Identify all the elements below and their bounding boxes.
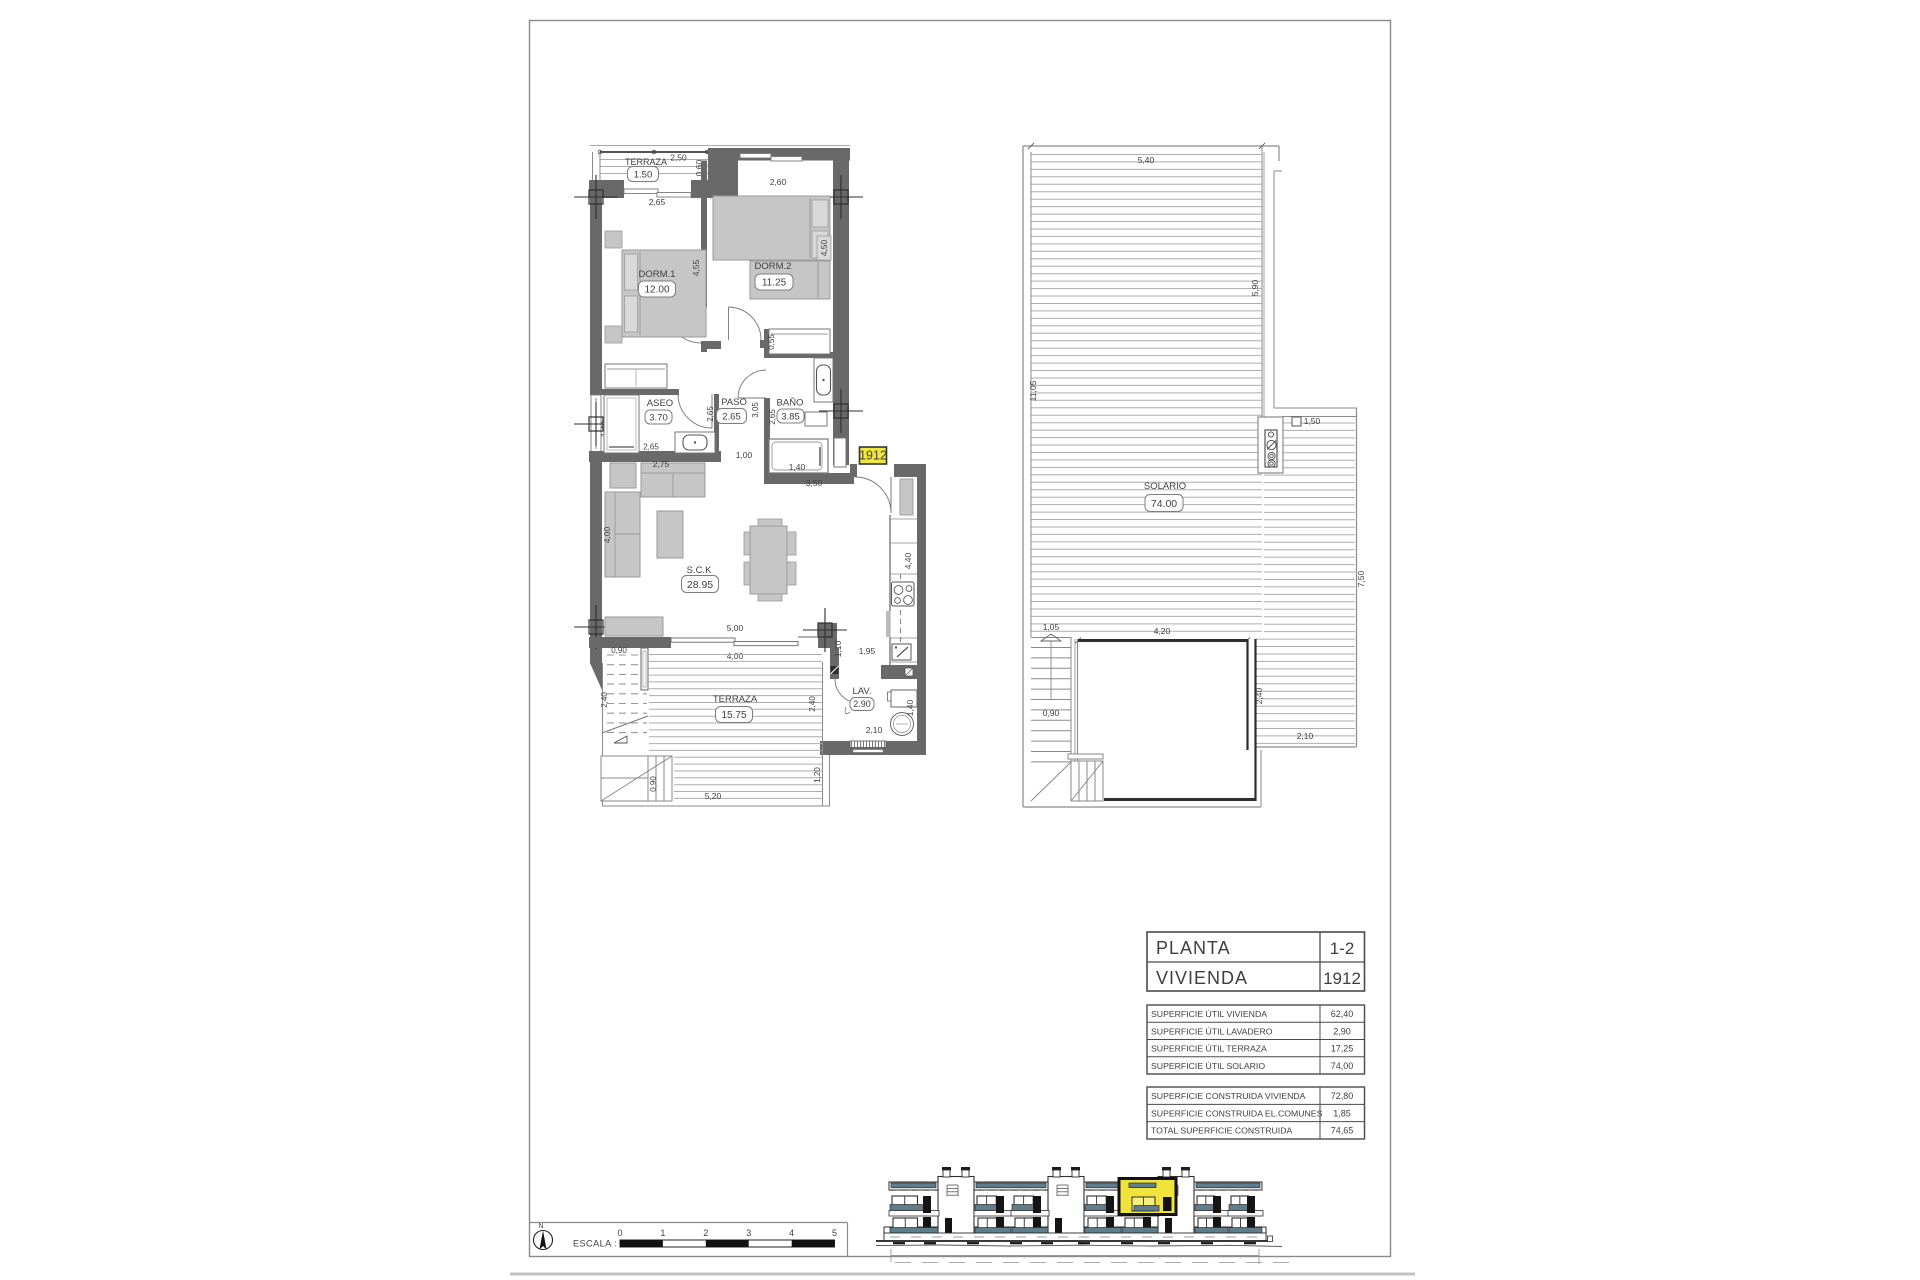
svg-text:2,40: 2,40 [808, 696, 817, 712]
svg-text:1,50: 1,50 [1304, 416, 1321, 426]
svg-text:74,65: 74,65 [1331, 1126, 1354, 1136]
svg-text:1912: 1912 [859, 449, 887, 463]
svg-text:2,65: 2,65 [768, 409, 777, 425]
svg-text:SUPERFICIE ÚTIL VIVIENDA: SUPERFICIE ÚTIL VIVIENDA [1151, 1009, 1267, 1019]
svg-text:3,50: 3,50 [806, 478, 823, 488]
svg-text:N: N [538, 1223, 543, 1230]
svg-text:2,40: 2,40 [600, 692, 609, 708]
svg-text:5,00: 5,00 [727, 623, 744, 633]
svg-text:TOTAL SUPERFICIE CONSTRUIDA: TOTAL SUPERFICIE CONSTRUIDA [1151, 1126, 1292, 1136]
svg-text:DORM.1: DORM.1 [639, 269, 676, 280]
svg-text:VIVIENDA: VIVIENDA [1156, 968, 1248, 988]
svg-text:15.75: 15.75 [721, 710, 746, 721]
svg-text:1: 1 [660, 1228, 665, 1238]
svg-text:3.70: 3.70 [649, 412, 668, 423]
svg-text:1-2: 1-2 [1330, 939, 1355, 958]
svg-text:1,20: 1,20 [813, 767, 822, 783]
svg-text:4,50: 4,50 [819, 239, 829, 256]
svg-text:4,00: 4,00 [727, 651, 744, 661]
svg-text:4,55: 4,55 [691, 259, 701, 276]
svg-text:BAÑO: BAÑO [777, 398, 804, 409]
svg-text:74.00: 74.00 [1151, 498, 1177, 510]
svg-text:SUPERFICIE CONSTRUIDA VIVIENDA: SUPERFICIE CONSTRUIDA VIVIENDA [1151, 1091, 1306, 1101]
svg-text:LAV.: LAV. [852, 686, 871, 697]
svg-text:2,65: 2,65 [706, 406, 715, 422]
svg-text:SUPERFICIE CONSTRUIDA EL.COMUN: SUPERFICIE CONSTRUIDA EL.COMUNES [1151, 1108, 1323, 1118]
svg-text:11.25: 11.25 [762, 278, 787, 289]
svg-text:5,90: 5,90 [1250, 279, 1260, 296]
svg-text:1,10: 1,10 [833, 640, 843, 657]
svg-text:0,55: 0,55 [767, 334, 776, 350]
svg-text:2,50: 2,50 [670, 153, 687, 163]
svg-text:2,75: 2,75 [653, 459, 670, 469]
svg-text:2.65: 2.65 [722, 411, 741, 422]
svg-text:1.50: 1.50 [634, 169, 653, 180]
svg-text:3,05: 3,05 [751, 402, 760, 418]
svg-text:4,40: 4,40 [903, 552, 913, 569]
svg-text:2.90: 2.90 [853, 699, 871, 709]
svg-text:1,05: 1,05 [1043, 622, 1060, 632]
svg-text:2,90: 2,90 [1333, 1026, 1351, 1036]
svg-text:PLANTA: PLANTA [1156, 938, 1231, 958]
svg-text:4: 4 [789, 1228, 794, 1238]
svg-text:2,60: 2,60 [770, 177, 787, 187]
svg-text:4,20: 4,20 [1154, 626, 1171, 636]
svg-text:1,40: 1,40 [905, 699, 915, 716]
svg-text:0,90: 0,90 [611, 646, 627, 655]
svg-text:5: 5 [832, 1228, 837, 1238]
svg-text:1912: 1912 [1323, 969, 1361, 988]
svg-text:1,40: 1,40 [789, 462, 806, 472]
svg-text:74,00: 74,00 [1331, 1061, 1354, 1071]
svg-text:17,25: 17,25 [1331, 1044, 1354, 1054]
svg-text:5,40: 5,40 [1138, 155, 1155, 165]
svg-text:72,80: 72,80 [1331, 1091, 1354, 1101]
svg-text:TERRAZA: TERRAZA [625, 157, 667, 167]
svg-text:4,00: 4,00 [602, 526, 612, 543]
svg-text:1,85: 1,85 [1333, 1108, 1351, 1118]
svg-text:28.95: 28.95 [687, 579, 713, 591]
svg-text:2,10: 2,10 [866, 725, 883, 735]
svg-text:5,20: 5,20 [705, 791, 722, 801]
svg-text:1,95: 1,95 [859, 646, 876, 656]
svg-text:7,50: 7,50 [1356, 570, 1366, 587]
svg-text:0,90: 0,90 [649, 776, 658, 792]
svg-text:S.C.K: S.C.K [687, 565, 712, 576]
svg-text:62,40: 62,40 [1331, 1009, 1354, 1019]
svg-text:SOLARIO: SOLARIO [1144, 481, 1186, 492]
svg-text:2,65: 2,65 [643, 443, 659, 452]
svg-text:12.00: 12.00 [644, 285, 669, 296]
svg-text:TERRAZA: TERRAZA [713, 694, 758, 705]
svg-text:SUPERFICIE ÚTIL SOLARIO: SUPERFICIE ÚTIL SOLARIO [1151, 1061, 1265, 1071]
svg-text:1,00: 1,00 [736, 450, 753, 460]
svg-text:SUPERFICIE ÚTIL LAVADERO: SUPERFICIE ÚTIL LAVADERO [1151, 1026, 1273, 1036]
svg-text:11,05: 11,05 [1028, 380, 1038, 401]
svg-text:SUPERFICIE ÚTIL TERRAZA: SUPERFICIE ÚTIL TERRAZA [1151, 1044, 1267, 1054]
svg-text:ASEO: ASEO [647, 398, 673, 409]
svg-text:0: 0 [617, 1228, 622, 1238]
svg-text:DORM.2: DORM.2 [755, 261, 792, 272]
svg-text:PASO: PASO [721, 397, 747, 408]
svg-text:3: 3 [746, 1228, 751, 1238]
svg-text:2,65: 2,65 [649, 197, 666, 207]
svg-text:2: 2 [703, 1228, 708, 1238]
svg-text:2,40: 2,40 [1254, 687, 1264, 704]
svg-text:3.85: 3.85 [781, 411, 800, 422]
svg-text:ESCALA :: ESCALA : [573, 1239, 617, 1249]
svg-text:2,10: 2,10 [1297, 731, 1314, 741]
